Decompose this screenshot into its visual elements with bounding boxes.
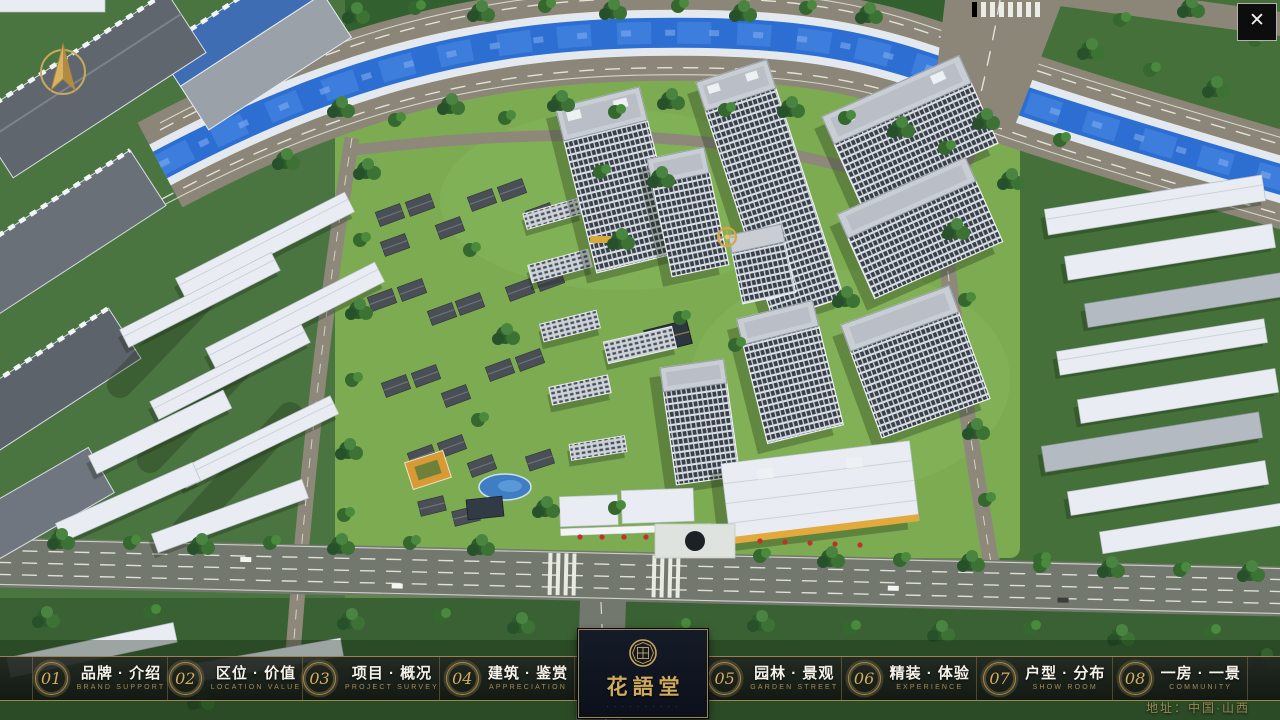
nav-group-left: 01 品牌 · 介绍 BRAND SUPPORT 02 区位 · 价值 LOCA… xyxy=(32,657,575,700)
nav-label: 精装 · 体验 xyxy=(890,666,970,681)
nav-sublabel: SHOW ROOM xyxy=(1033,684,1098,691)
nav-item-location[interactable]: 02 区位 · 价值 LOCATION VALUE xyxy=(167,657,302,700)
brand-tagline: · · · · · · · · · · xyxy=(607,704,680,710)
compass-icon xyxy=(34,38,92,100)
nav-label: 园林 · 景观 xyxy=(754,666,834,681)
presentation-stage: ✕ 01 品牌 · 介绍 BRAND SUPPORT 02 区位 · 价值 LO… xyxy=(0,0,1280,720)
nav-number-badge: 06 xyxy=(848,662,881,695)
close-button[interactable]: ✕ xyxy=(1237,3,1277,41)
nav-number-badge: 08 xyxy=(1119,662,1152,695)
nav-label: 建筑 · 鉴赏 xyxy=(488,666,568,681)
nav-group-right: 05 园林 · 景观 GARDEN STREET 06 精装 · 体验 EXPE… xyxy=(705,657,1248,700)
nav-sublabel: BRAND SUPPORT xyxy=(77,684,166,691)
nav-item-decoration[interactable]: 06 精装 · 体验 EXPERIENCE xyxy=(841,657,977,700)
nav-sublabel: COMMUNITY xyxy=(1169,684,1232,691)
nav-number-badge: 05 xyxy=(708,662,741,695)
nav-label: 品牌 · 介绍 xyxy=(81,666,161,681)
nav-number-badge: 03 xyxy=(303,662,336,695)
address-text: 地址：中国·山西 xyxy=(1146,699,1250,716)
nav-number-badge: 02 xyxy=(169,662,202,695)
nav-number-badge: 01 xyxy=(35,662,68,695)
nav-sublabel: PROJECT SURVEY xyxy=(345,684,439,691)
nav-number-badge: 07 xyxy=(983,662,1016,695)
nav-item-architecture[interactable]: 04 建筑 · 鉴赏 APPRECIATION xyxy=(439,657,575,700)
aerial-masterplan-render xyxy=(0,0,1280,720)
nav-number-badge: 04 xyxy=(446,662,479,695)
nav-sublabel: LOCATION VALUE xyxy=(211,684,301,691)
brand-logo-panel[interactable]: 花語堂 · · · · · · · · · · xyxy=(578,629,708,718)
nav-item-floorplans[interactable]: 07 户型 · 分布 SHOW ROOM xyxy=(976,657,1112,700)
nav-label: 区位 · 价值 xyxy=(216,666,296,681)
nav-sublabel: GARDEN STREET xyxy=(750,684,838,691)
nav-sublabel: EXPERIENCE xyxy=(896,684,963,691)
nav-item-garden[interactable]: 05 园林 · 景观 GARDEN STREET xyxy=(705,657,841,700)
nav-item-project[interactable]: 03 项目 · 概况 PROJECT SURVEY xyxy=(302,657,439,700)
nav-label: 一房 · 一景 xyxy=(1161,666,1241,681)
nav-label: 户型 · 分布 xyxy=(1025,666,1105,681)
gate-emblem xyxy=(685,531,705,551)
nav-item-brand[interactable]: 01 品牌 · 介绍 BRAND SUPPORT xyxy=(32,657,167,700)
nav-sublabel: APPRECIATION xyxy=(489,684,567,691)
nav-label: 项目 · 概况 xyxy=(352,666,432,681)
brand-seal-icon xyxy=(628,638,658,668)
brand-name: 花語堂 xyxy=(602,671,685,701)
nav-item-views[interactable]: 08 一房 · 一景 COMMUNITY xyxy=(1112,657,1249,700)
